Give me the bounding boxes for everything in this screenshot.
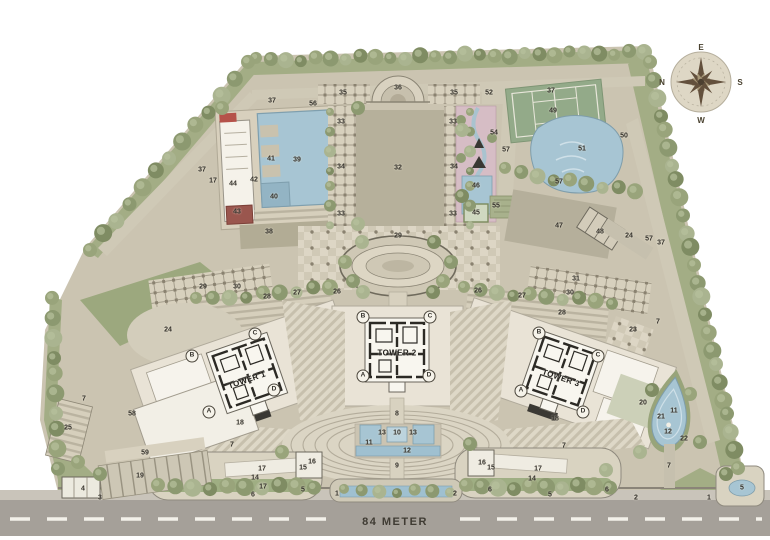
gate-left (296, 452, 322, 478)
site-plan: E S W N 37563717444139424043383536355233… (0, 0, 770, 540)
compass-north: N (659, 78, 665, 87)
compass-rose: E S W N (659, 43, 743, 125)
water-13-right (413, 425, 434, 444)
water-12 (356, 446, 440, 456)
red-pavilion (226, 205, 253, 224)
tower-2-plan (365, 318, 429, 392)
compass-south: S (737, 78, 743, 87)
path-7-right (664, 444, 675, 488)
water-10 (387, 427, 407, 442)
water-13-left (360, 425, 381, 444)
compass-east: E (698, 43, 704, 52)
gate-right (468, 450, 494, 476)
kids-pool (261, 182, 290, 207)
central-lawn-32 (356, 110, 444, 228)
road-width-label: 84 METER (362, 516, 428, 528)
compass-west: W (697, 116, 705, 125)
site-plan-drawing: E S W N (0, 0, 770, 540)
pond-51 (531, 116, 623, 194)
kiosk-4 (62, 477, 100, 498)
